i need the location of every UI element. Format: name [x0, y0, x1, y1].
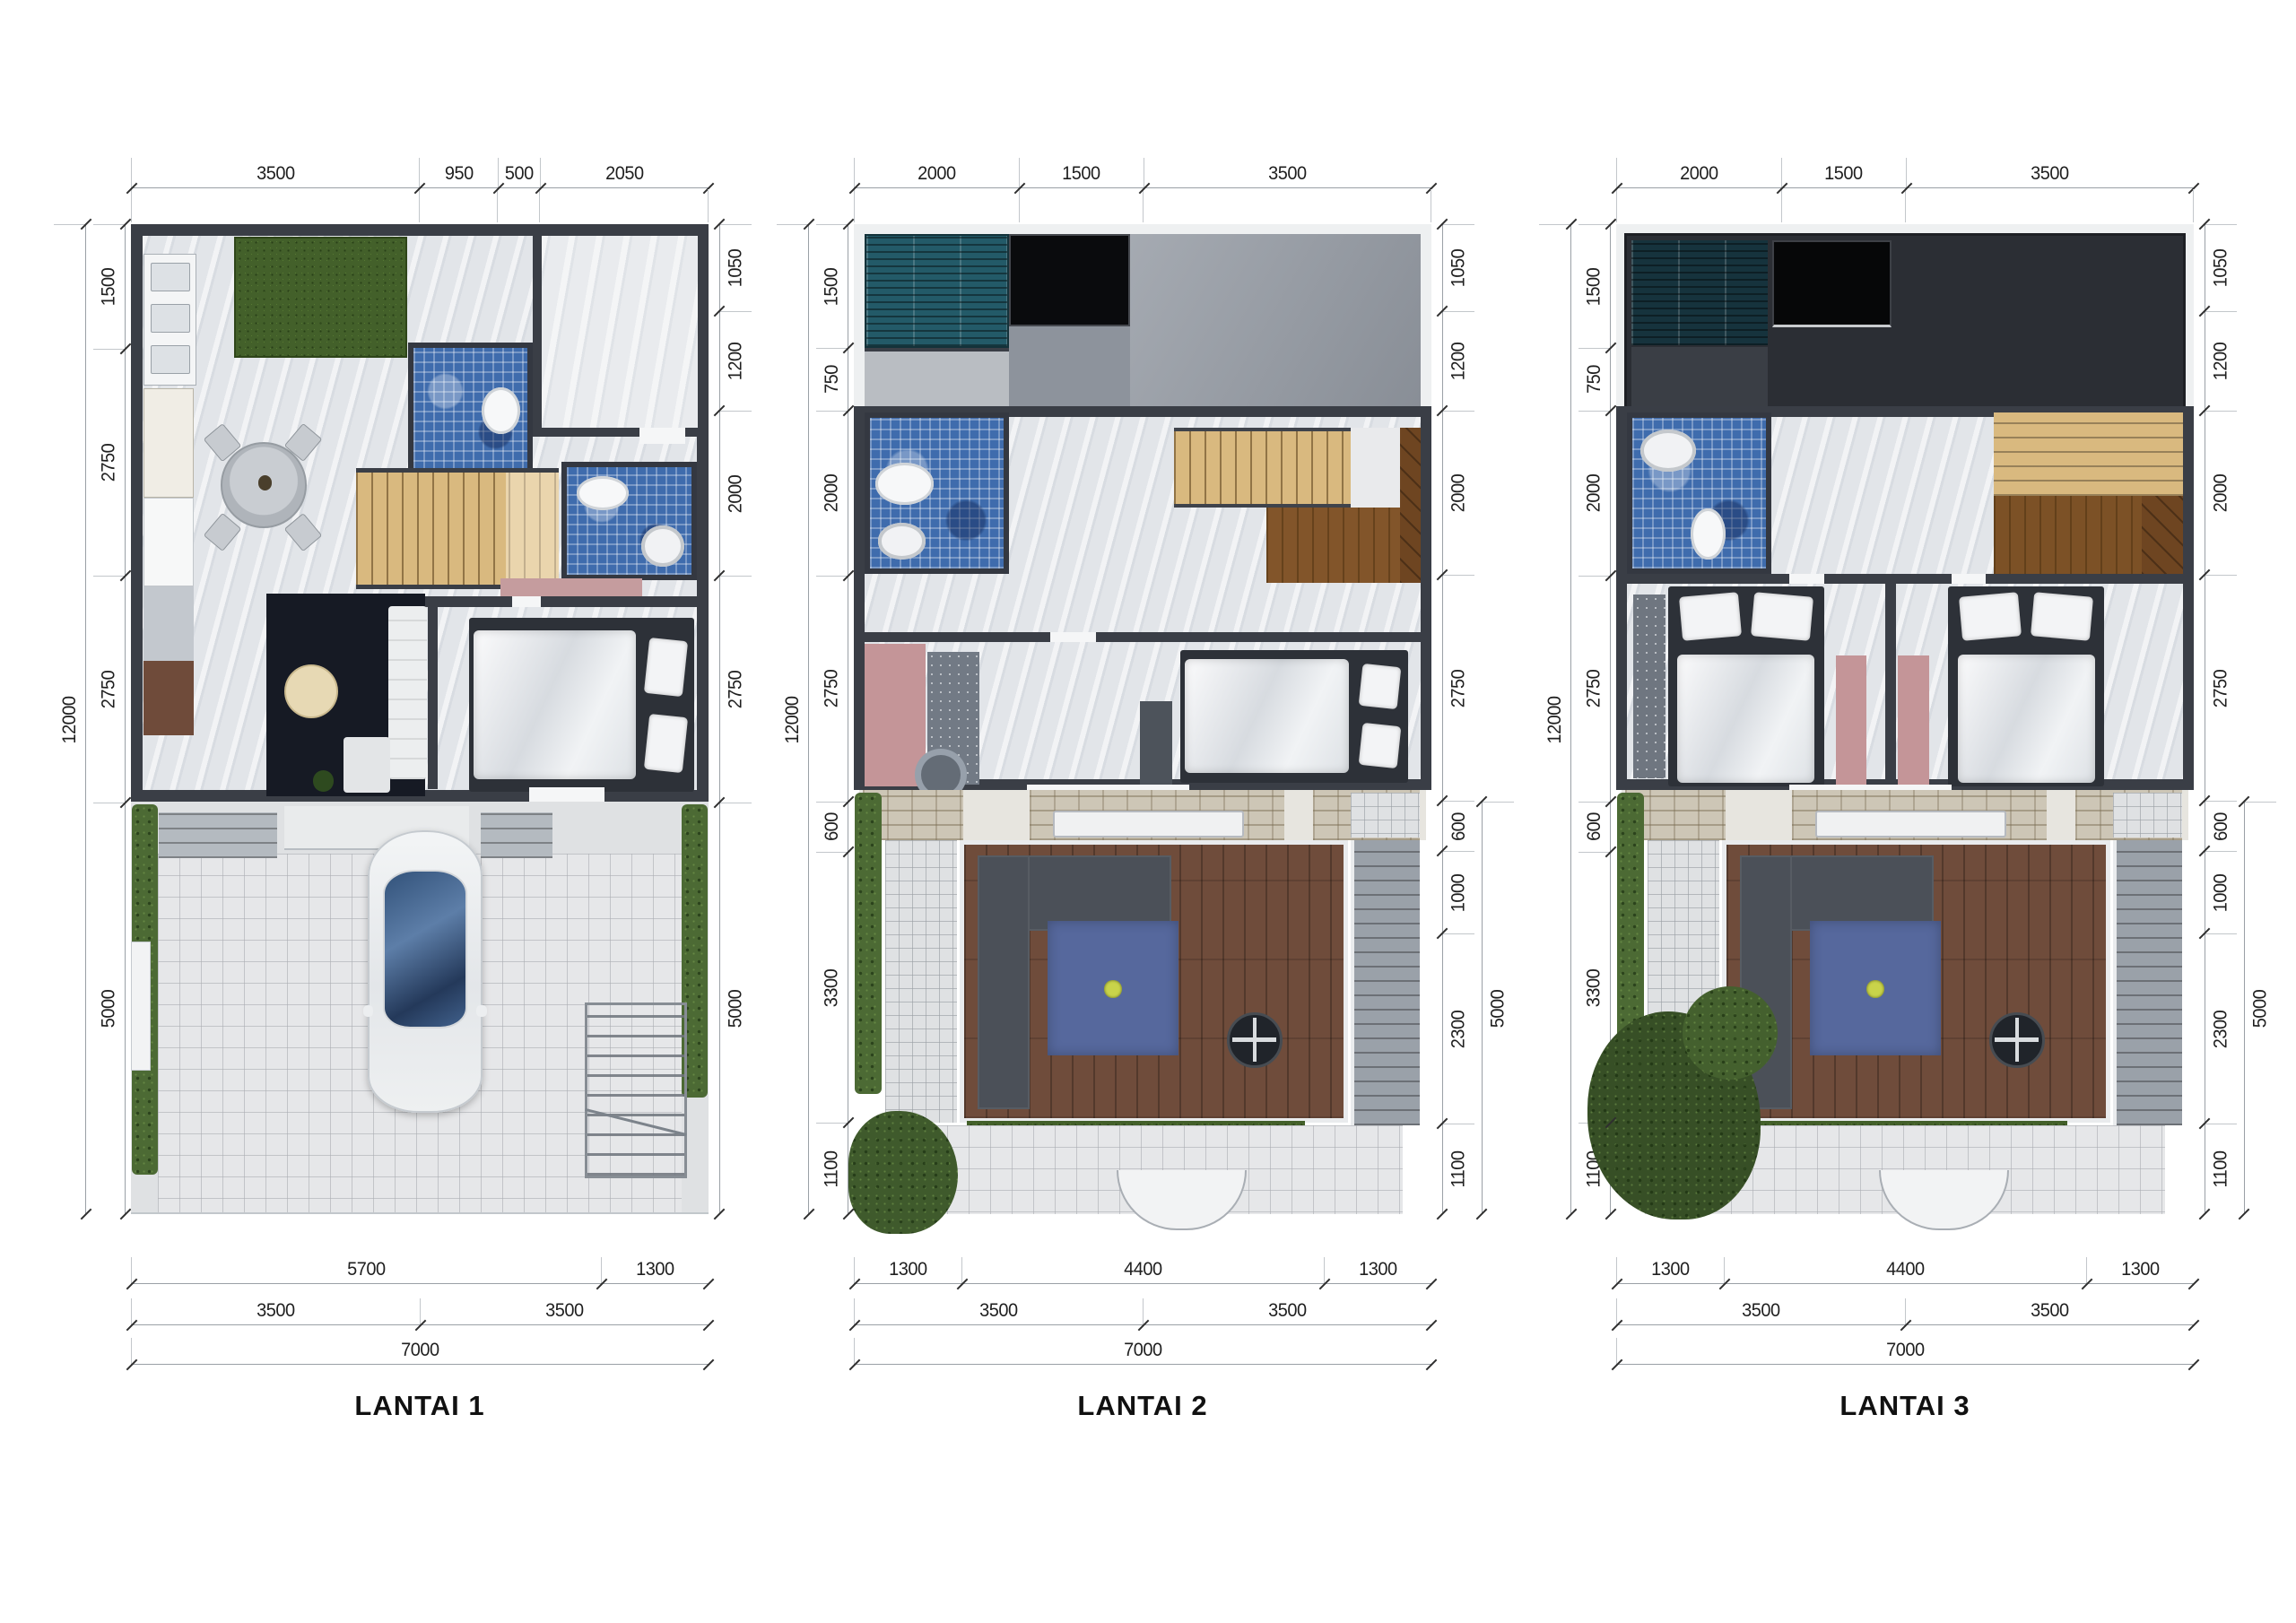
- dim-segment: 1300: [1616, 1257, 1724, 1283]
- dim-label: 2000: [918, 163, 955, 187]
- floorplan-lantai-2: 200015003500 12000 150075020002750600330…: [759, 133, 1521, 1496]
- dim-segment: [1019, 189, 1143, 222]
- side-path: [885, 840, 957, 1124]
- dim-segment: [1616, 189, 1781, 222]
- tree-canopy: [1587, 1011, 1761, 1219]
- bathroom-1: [408, 343, 532, 476]
- dim-chain-top: 35009505002050: [131, 158, 709, 188]
- dim-segment: 600: [1578, 802, 1610, 852]
- potted-plant-icon: [1866, 980, 1883, 998]
- interior-wall: [865, 632, 1422, 642]
- dim-segment: 7000: [854, 1338, 1431, 1364]
- dim-label: 12000: [782, 696, 804, 743]
- stair-winder: [2142, 496, 2183, 573]
- stair-landing-pad: [1351, 793, 1420, 838]
- dim-label: 2750: [99, 443, 120, 481]
- dim-segment: 5700: [131, 1257, 601, 1283]
- floorplan-lantai-3: 200015003500 12000 150075020002750600330…: [1521, 133, 2283, 1496]
- dim-label: 1500: [822, 267, 843, 305]
- hedge: [855, 793, 882, 1095]
- sofa: [388, 606, 428, 779]
- bed-duvet: [1185, 659, 1349, 773]
- dim-segment: 1050: [2205, 224, 2237, 311]
- sink-icon: [878, 523, 926, 559]
- plan-title: LANTAI 2: [854, 1390, 1431, 1422]
- door-gap: [1789, 574, 1824, 584]
- dim-segment: 2750: [816, 576, 848, 802]
- dim-label: 5000: [99, 990, 120, 1028]
- car-mirror: [363, 1005, 373, 1017]
- dim-label: 1300: [1359, 1259, 1396, 1283]
- outdoor-stair: [2113, 840, 2182, 1125]
- dim-segment: 1500: [1781, 158, 1905, 187]
- dim-label: 600: [2210, 812, 2231, 841]
- dim-label: 950: [444, 163, 473, 187]
- plant-icon: [313, 770, 334, 791]
- bench: [1053, 811, 1244, 838]
- stair-landing: [506, 473, 559, 586]
- plan3-interior: [1616, 224, 2194, 1214]
- dim-segment: 1050: [1443, 224, 1474, 311]
- dim-segment: [1905, 189, 2193, 222]
- dim-label: 2750: [726, 671, 747, 708]
- sink-icon: [641, 525, 683, 567]
- dim-segment: 3500: [1616, 1298, 1905, 1324]
- kitchen-stove: [143, 254, 196, 386]
- dim-segment: 2750: [93, 349, 125, 576]
- staircase: [356, 468, 558, 590]
- roof-parapet: [865, 348, 1009, 409]
- dim-segment: 1200: [1443, 311, 1474, 411]
- bench: [1815, 811, 2006, 838]
- wood-cabinet: [143, 661, 193, 735]
- dim-chain-left-overall: 12000: [777, 224, 809, 1214]
- dim-segment: [131, 189, 419, 222]
- dim-segment: 12000: [777, 224, 808, 1214]
- dim-label: 3500: [1268, 1300, 1306, 1324]
- dim-segment: 2000: [1616, 158, 1781, 187]
- dim-segment: 1100: [816, 1123, 848, 1214]
- coffee-table: [284, 664, 338, 718]
- dim-extensions-top: [131, 189, 709, 222]
- dim-segment: 600: [2205, 801, 2237, 851]
- dim-segment: 3500: [420, 1298, 709, 1324]
- dim-label: 4400: [1124, 1259, 1161, 1283]
- stair-flight: [1994, 496, 2142, 573]
- dim-label: 2750: [822, 670, 843, 707]
- dim-segment: 3500: [1905, 1298, 2194, 1324]
- dim-label: 1200: [1448, 342, 1470, 379]
- bed: [1180, 650, 1408, 783]
- dim-segment: 1050: [720, 224, 752, 311]
- dim-label: 1100: [822, 1150, 843, 1187]
- entry-awning: [1117, 1170, 1247, 1229]
- entry-steps: [481, 812, 553, 858]
- bed-duvet: [1958, 655, 2095, 783]
- dim-chain-right-overall: 5000: [2244, 802, 2276, 1214]
- pillow: [2031, 592, 2093, 641]
- dim-label: 3500: [257, 1300, 294, 1324]
- dim-label: 12000: [59, 696, 81, 743]
- dim-segment: [419, 189, 498, 222]
- toilet-icon: [875, 463, 935, 505]
- dim-label: 3500: [1742, 1300, 1779, 1324]
- dim-label: 1300: [1651, 1259, 1689, 1283]
- dim-segment: 2000: [2205, 411, 2237, 576]
- kitchen-cabinet: [143, 498, 193, 586]
- dim-segment: 1300: [1324, 1257, 1431, 1283]
- dim-chain-right: 1050120020002750600100023001100: [2205, 224, 2237, 1214]
- dim-label: 3500: [2031, 163, 2069, 187]
- dim-chain-bottom-3: 7000: [131, 1338, 709, 1365]
- dim-label: 3500: [979, 1300, 1017, 1324]
- roof-parapet: [1631, 347, 1768, 410]
- car: [368, 830, 483, 1114]
- dim-segment: 5000: [720, 803, 752, 1214]
- pink-rug: [1836, 655, 1867, 788]
- floorplan-lantai-1: 35009505002050 12000 1500275027505000 10…: [36, 133, 798, 1496]
- dim-label: 5000: [2250, 989, 2272, 1027]
- dim-segment: 2000: [1578, 411, 1610, 576]
- dim-label: 1200: [2211, 342, 2232, 379]
- dim-label: 750: [1583, 365, 1605, 394]
- dim-label: 750: [821, 365, 842, 394]
- dim-segment: 1500: [93, 224, 125, 349]
- pillow: [1751, 592, 1813, 641]
- dim-label: 2000: [2211, 474, 2232, 512]
- dim-segment: 750: [1578, 348, 1610, 411]
- dim-segment: 2000: [816, 411, 848, 576]
- dim-chain-top: 200015003500: [1616, 158, 2194, 188]
- dim-segment: [497, 189, 539, 222]
- dim-chain-left-overall: 12000: [1539, 224, 1571, 1214]
- staircase-upper: [1174, 428, 1350, 507]
- dim-segment: 5000: [1483, 802, 1514, 1214]
- dim-label: 600: [821, 812, 842, 841]
- dim-segment: 1500: [1578, 224, 1610, 348]
- dim-segment: 3500: [1906, 158, 2195, 187]
- dim-chain-bottom-3: 7000: [1616, 1338, 2194, 1365]
- dim-label: 1050: [2211, 249, 2232, 287]
- dim-chain-top: 200015003500: [854, 158, 1431, 188]
- round-table: [1989, 1012, 2045, 1068]
- dim-segment: 3500: [1143, 1298, 1431, 1324]
- toilet-icon: [577, 476, 630, 511]
- dim-segment: 1300: [854, 1257, 961, 1283]
- dim-segment: 2000: [1443, 411, 1474, 576]
- table-slat: [2015, 1018, 2019, 1062]
- outdoor-stair: [1351, 840, 1420, 1125]
- dim-label: 3300: [822, 968, 843, 1006]
- dim-chain-right-overall: 5000: [1482, 802, 1514, 1214]
- skylight-void: [1009, 234, 1130, 326]
- dim-label: 2750: [99, 670, 120, 707]
- staircase-lower: [1266, 508, 1399, 583]
- car-glass-roof: [383, 870, 467, 1028]
- dim-segment: 1100: [2205, 1124, 2237, 1214]
- dim-segment: 5000: [93, 803, 125, 1214]
- concrete-roof: [1009, 326, 1130, 410]
- dim-label: 600: [1583, 812, 1605, 841]
- dim-segment: 3500: [131, 158, 419, 187]
- dim-label: 3500: [2031, 1300, 2068, 1324]
- sink-icon: [1640, 430, 1697, 472]
- plan-title: LANTAI 3: [1616, 1390, 2194, 1422]
- dim-label: 1100: [2211, 1150, 2232, 1187]
- tree-canopy: [1683, 986, 1778, 1080]
- dim-segment: 2300: [1443, 933, 1474, 1123]
- dim-label: 1100: [1448, 1150, 1470, 1187]
- dim-segment: 3300: [816, 852, 848, 1124]
- dim-label: 1500: [1063, 163, 1100, 187]
- toilet-icon: [482, 387, 520, 434]
- dim-segment: 7000: [131, 1338, 709, 1364]
- dim-segment: 950: [419, 158, 498, 187]
- dim-label: 2000: [1448, 474, 1470, 512]
- dim-segment: 1200: [2205, 311, 2237, 411]
- dim-extensions-top: [1616, 189, 2194, 222]
- dim-label: 2000: [822, 474, 843, 512]
- dim-segment: 3500: [131, 1298, 420, 1324]
- toilet-icon: [1691, 508, 1726, 560]
- dim-segment: 1000: [1443, 851, 1474, 933]
- bathroom: [1627, 412, 1771, 574]
- dim-chain-bottom-1: 130044001300: [854, 1257, 1431, 1284]
- entry-awning: [1879, 1170, 2009, 1229]
- dim-segment: 2300: [2205, 933, 2237, 1123]
- dim-label: 2750: [2211, 670, 2232, 707]
- interior-wall: [408, 596, 697, 607]
- dim-label: 5000: [1488, 989, 1509, 1027]
- skylight-glass: [1631, 240, 1768, 345]
- bathroom: [865, 412, 1009, 574]
- pillow: [1959, 592, 2022, 641]
- dim-label: 7000: [401, 1340, 439, 1364]
- door-gap: [512, 596, 541, 607]
- dim-chain-bottom-2: 35003500: [131, 1298, 709, 1325]
- dim-label: 3500: [1269, 163, 1307, 187]
- dim-chain-right: 10501200200027505000: [719, 224, 752, 1214]
- dim-label: 500: [505, 163, 534, 187]
- floorplan-sheet: 35009505002050 12000 1500275027505000 10…: [0, 0, 2296, 1623]
- dim-label: 4400: [1886, 1259, 1924, 1283]
- dim-chain-bottom-2: 35003500: [1616, 1298, 2194, 1325]
- dim-segment: 12000: [54, 224, 85, 1214]
- dim-segment: 7000: [1616, 1338, 2194, 1364]
- concrete-roof: [1130, 234, 1422, 409]
- dim-segment: 4400: [1724, 1257, 2086, 1283]
- dim-label: 1200: [726, 343, 747, 380]
- pink-rug: [1898, 655, 1929, 788]
- dim-segment: 600: [816, 802, 848, 852]
- dim-segment: [1781, 189, 1905, 222]
- dim-chain-bottom-1: 57001300: [131, 1257, 709, 1284]
- dim-segment: 2750: [2205, 575, 2237, 801]
- dim-label: 2300: [2211, 1010, 2232, 1047]
- entry-steps: [159, 812, 277, 858]
- dim-label: 3500: [545, 1300, 583, 1324]
- dim-segment: 1300: [2086, 1257, 2194, 1283]
- bed: [469, 618, 694, 791]
- dim-segment: 3500: [854, 1298, 1143, 1324]
- winder-staircase: [1994, 412, 2183, 574]
- round-table: [1227, 1012, 1283, 1068]
- dim-label: 2000: [726, 474, 747, 512]
- skylight-void: [1772, 240, 1892, 327]
- dim-segment: 5000: [2245, 802, 2276, 1214]
- dim-label: 1050: [726, 249, 747, 287]
- gate-brace: [585, 1108, 686, 1136]
- plan-title: LANTAI 1: [131, 1390, 709, 1422]
- pillow: [1358, 722, 1401, 768]
- dim-label: 1300: [636, 1259, 674, 1283]
- dim-label: 3300: [1584, 968, 1605, 1006]
- dim-segment: 3500: [1144, 158, 1432, 187]
- interior-wall: [428, 596, 438, 789]
- dim-segment: [1143, 189, 1431, 222]
- skylight-glass: [865, 234, 1009, 348]
- dim-label: 1300: [889, 1259, 926, 1283]
- dim-segment: 2000: [854, 158, 1019, 187]
- dim-label: 1300: [2121, 1259, 2159, 1283]
- dim-label: 1000: [2211, 874, 2232, 912]
- front-door-gap: [529, 787, 604, 801]
- pillow: [644, 638, 688, 697]
- plan2-interior: [854, 224, 1431, 1214]
- interior-wall: [1627, 574, 2184, 584]
- dim-segment: 2750: [720, 576, 752, 803]
- dim-label: 1000: [1448, 874, 1470, 912]
- dim-label: 2750: [1448, 670, 1470, 707]
- car-mirror: [476, 1005, 486, 1017]
- dim-segment: 500: [498, 158, 540, 187]
- courtyard-grass: [234, 237, 407, 358]
- pillow: [1358, 664, 1401, 710]
- dim-label: 7000: [1124, 1340, 1161, 1364]
- dim-label: 1500: [1584, 267, 1605, 305]
- dim-label: 7000: [1886, 1340, 1924, 1364]
- boundary-wall: [131, 942, 151, 1071]
- dim-chain-left: 1500275027505000: [93, 224, 126, 1214]
- bed: [1668, 586, 1824, 786]
- dim-label: 5700: [347, 1259, 385, 1283]
- door-gap: [1952, 574, 1987, 584]
- dim-label: 5000: [726, 990, 747, 1028]
- dim-segment: [854, 189, 1019, 222]
- sofa-chaise: [344, 737, 390, 793]
- dim-segment: 1300: [601, 1257, 709, 1283]
- dim-segment: 2750: [1578, 576, 1610, 802]
- console-table: [1140, 701, 1172, 786]
- dim-segment: 1100: [1443, 1124, 1474, 1214]
- fridge: [143, 586, 193, 661]
- table-centerpiece: [258, 475, 272, 490]
- dim-chain-bottom-1: 130044001300: [1616, 1257, 2194, 1284]
- runner-rug: [1633, 595, 1665, 778]
- dim-label: 1050: [1448, 249, 1470, 287]
- bed-duvet: [1677, 655, 1814, 783]
- table-slat: [1253, 1018, 1257, 1062]
- dim-segment: 1200: [720, 311, 752, 411]
- plan1-interior: [131, 224, 709, 1214]
- dim-label: 1500: [1825, 163, 1863, 187]
- dim-segment: 1500: [816, 224, 848, 348]
- door-gap: [1050, 632, 1097, 642]
- bed: [1948, 586, 2104, 786]
- entry-foyer: [533, 236, 698, 437]
- kitchen-counter: [143, 388, 193, 497]
- bathroom-2: [561, 462, 697, 580]
- dim-chain-right: 1050120020002750600100023001100: [1442, 224, 1474, 1214]
- burner-icon: [151, 345, 189, 374]
- potted-plant-icon: [1104, 980, 1121, 998]
- dim-segment: [539, 189, 708, 222]
- sliding-gate: [585, 1002, 686, 1179]
- dim-chain-left: 15007502000275060033001100: [816, 224, 848, 1214]
- dim-label: 600: [1448, 812, 1469, 841]
- pillow: [1679, 592, 1742, 641]
- dim-segment: 1500: [1019, 158, 1143, 187]
- dim-segment: 600: [1443, 801, 1474, 851]
- hedge: [1617, 793, 1644, 1050]
- burner-icon: [151, 304, 189, 333]
- dim-segment: 4400: [961, 1257, 1324, 1283]
- stair-landing-pad: [2113, 793, 2182, 838]
- stair-winder: [1400, 428, 1422, 582]
- dim-segment: 2750: [93, 576, 125, 803]
- dim-chain-bottom-3: 7000: [854, 1338, 1431, 1365]
- dim-label: 3500: [257, 163, 294, 187]
- dim-label: 2300: [1448, 1010, 1470, 1047]
- dim-segment: 2000: [720, 411, 752, 576]
- dim-chain-bottom-2: 35003500: [854, 1298, 1431, 1325]
- bush: [848, 1111, 958, 1234]
- dim-segment: 12000: [1539, 224, 1570, 1214]
- dim-segment: 750: [816, 348, 848, 411]
- dim-label: 2000: [1680, 163, 1718, 187]
- dim-label: 2750: [1584, 670, 1605, 707]
- dim-segment: 2050: [540, 158, 709, 187]
- pillow: [644, 714, 688, 773]
- dim-label: 12000: [1544, 696, 1566, 743]
- outdoor-sofa: [978, 855, 1030, 1109]
- bed-duvet: [474, 630, 636, 779]
- burner-icon: [151, 263, 189, 291]
- dim-segment: 2750: [1443, 575, 1474, 801]
- dim-chain-left-overall: 12000: [54, 224, 86, 1214]
- dim-segment: 1000: [2205, 851, 2237, 933]
- entry-door-gap: [639, 428, 686, 444]
- stair-flight: [1994, 412, 2183, 497]
- dim-label: 1500: [99, 268, 120, 306]
- dim-label: 2050: [605, 163, 643, 187]
- dim-extensions-top: [854, 189, 1431, 222]
- bedroom-divider-wall: [1885, 574, 1896, 790]
- dim-label: 2000: [1584, 474, 1605, 512]
